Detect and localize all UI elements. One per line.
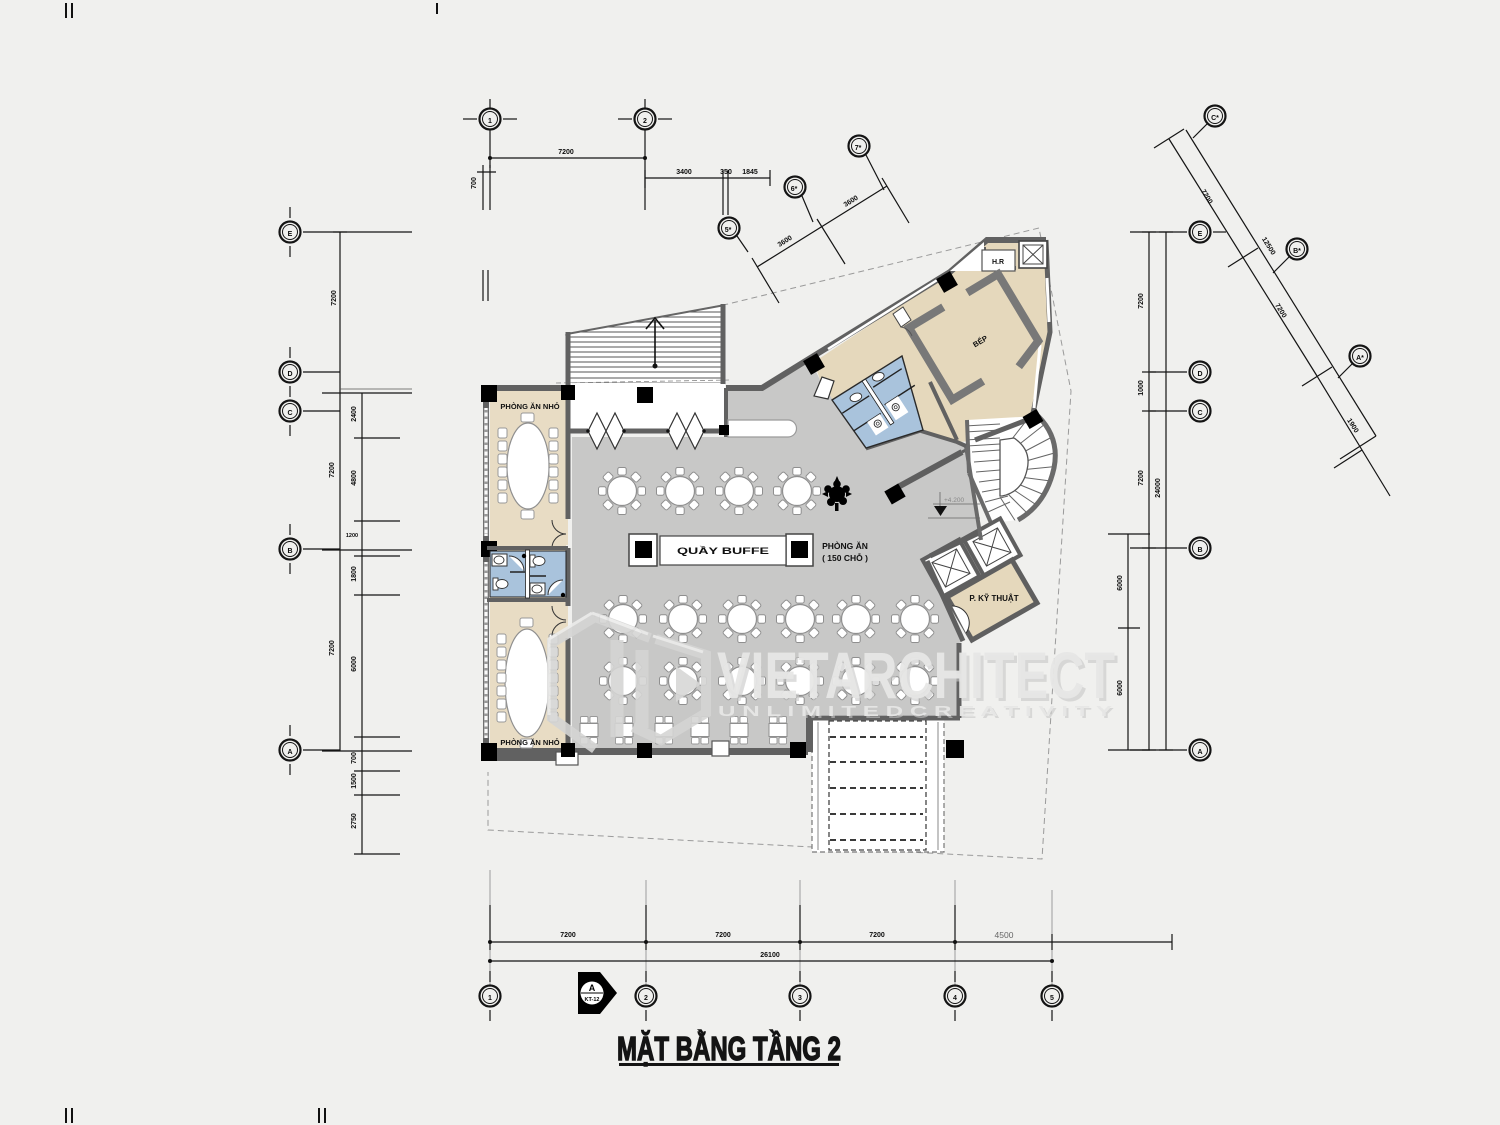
svg-text:6000: 6000 (351, 656, 358, 672)
svg-text:VIETARCHITECT: VIETARCHITECT (717, 638, 1115, 712)
svg-text:1500: 1500 (351, 773, 358, 789)
svg-text:C: C (287, 410, 292, 417)
svg-text:2: 2 (644, 995, 648, 1002)
svg-text:( 150 CHỖ ): ( 150 CHỖ ) (822, 552, 868, 563)
svg-text:A: A (1197, 749, 1202, 756)
svg-text:1200: 1200 (346, 533, 358, 539)
svg-text:700: 700 (351, 752, 358, 764)
svg-text:PHÒNG ĂN: PHÒNG ĂN (822, 540, 868, 551)
svg-text:B*: B* (1293, 248, 1301, 255)
svg-text:7200: 7200 (560, 932, 576, 939)
svg-text:1800: 1800 (351, 566, 358, 582)
svg-text:350: 350 (720, 169, 732, 176)
svg-text:4: 4 (953, 995, 957, 1002)
svg-text:7200: 7200 (331, 290, 338, 306)
svg-text:2400: 2400 (351, 406, 358, 422)
svg-text:7200: 7200 (329, 640, 336, 656)
svg-text:C: C (1197, 410, 1202, 417)
svg-text:A: A (589, 983, 596, 993)
svg-text:4800: 4800 (351, 470, 358, 486)
svg-text:B: B (287, 548, 292, 555)
svg-text:7200: 7200 (869, 932, 885, 939)
svg-text:PHÒNG ĂN NHỎ: PHÒNG ĂN NHỎ (500, 738, 559, 747)
svg-text:7200: 7200 (558, 149, 574, 156)
svg-text:24000: 24000 (1155, 478, 1162, 498)
svg-text:D: D (287, 371, 292, 378)
svg-text:700: 700 (471, 177, 478, 189)
svg-text:P. KỸ THUẬT: P. KỸ THUẬT (969, 594, 1018, 603)
svg-text:QUẦY BUFFE: QUẦY BUFFE (677, 546, 769, 556)
svg-text:7200: 7200 (1138, 293, 1145, 309)
svg-text:7200: 7200 (1138, 470, 1145, 486)
svg-text:+4.200: +4.200 (944, 497, 964, 504)
svg-text:E: E (1198, 231, 1203, 238)
svg-text:U N L I M I T E D C R E A T: U N L I M I T E D C R E A T I V I T Y (718, 703, 1112, 720)
svg-text:2750: 2750 (351, 813, 358, 829)
svg-text:D: D (1197, 371, 1202, 378)
svg-text:PHÒNG ĂN NHỎ: PHÒNG ĂN NHỎ (500, 402, 559, 411)
svg-text:1845: 1845 (742, 169, 758, 176)
svg-text:KT-12: KT-12 (585, 997, 600, 1003)
svg-text:5: 5 (1050, 995, 1054, 1002)
svg-text:26100: 26100 (760, 952, 780, 959)
svg-text:1: 1 (488, 118, 492, 125)
svg-text:3: 3 (798, 995, 802, 1002)
svg-text:5*: 5* (725, 227, 732, 234)
svg-text:3400: 3400 (676, 169, 692, 176)
svg-text:6*: 6* (791, 186, 798, 193)
svg-text:B: B (1197, 547, 1202, 554)
svg-text:7*: 7* (855, 145, 862, 152)
svg-text:MẶT BẰNG TẦNG 2: MẶT BẰNG TẦNG 2 (617, 1030, 841, 1067)
svg-text:6000: 6000 (1117, 575, 1124, 591)
svg-text:H.R: H.R (992, 259, 1004, 266)
svg-text:E: E (288, 231, 293, 238)
svg-text:A: A (287, 749, 292, 756)
svg-text:A*: A* (1356, 355, 1364, 362)
svg-text:C*: C* (1211, 115, 1219, 122)
svg-text:6000: 6000 (1117, 680, 1124, 696)
svg-text:2: 2 (643, 118, 647, 125)
svg-text:1: 1 (488, 995, 492, 1002)
svg-text:7200: 7200 (329, 462, 336, 478)
svg-text:1000: 1000 (1138, 380, 1145, 396)
svg-text:7200: 7200 (715, 932, 731, 939)
svg-text:4500: 4500 (995, 930, 1014, 940)
